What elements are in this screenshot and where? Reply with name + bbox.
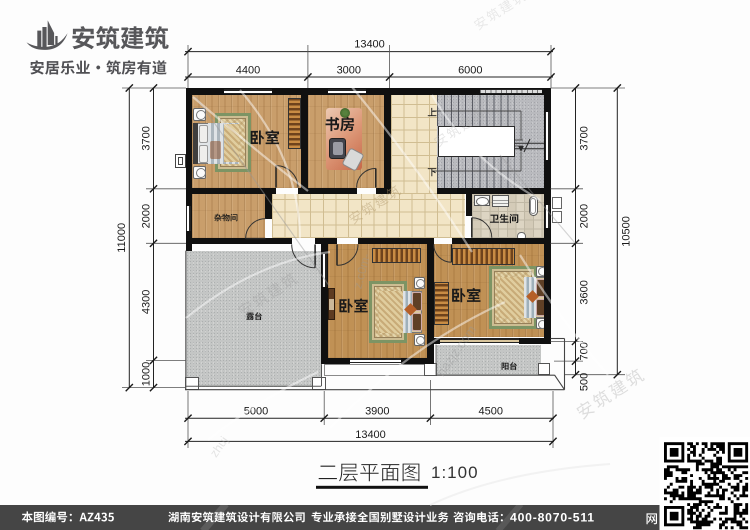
svg-text:10500: 10500 [621, 216, 633, 247]
svg-text:4300: 4300 [141, 290, 153, 314]
svg-text:2000: 2000 [141, 204, 153, 228]
svg-text:3700: 3700 [579, 126, 591, 150]
svg-text:3900: 3900 [365, 406, 389, 418]
svg-text:3000: 3000 [337, 65, 361, 77]
svg-text:2000: 2000 [579, 204, 591, 228]
svg-text:3600: 3600 [579, 280, 591, 304]
svg-text:4400: 4400 [236, 65, 260, 77]
svg-text:4500: 4500 [478, 406, 502, 418]
svg-text:500: 500 [579, 373, 591, 391]
svg-text:6000: 6000 [458, 65, 482, 77]
svg-text:nazjz.com: nazjz.com [433, 322, 479, 379]
svg-text:13400: 13400 [354, 39, 385, 51]
svg-text:400-8070-511: 400-8070-511 [510, 511, 595, 525]
svg-text:1:100: 1:100 [431, 463, 479, 482]
svg-text:1000: 1000 [141, 362, 153, 386]
svg-text:11000: 11000 [116, 223, 128, 253]
svg-text:3700: 3700 [141, 126, 153, 150]
svg-text:13400: 13400 [355, 429, 386, 441]
